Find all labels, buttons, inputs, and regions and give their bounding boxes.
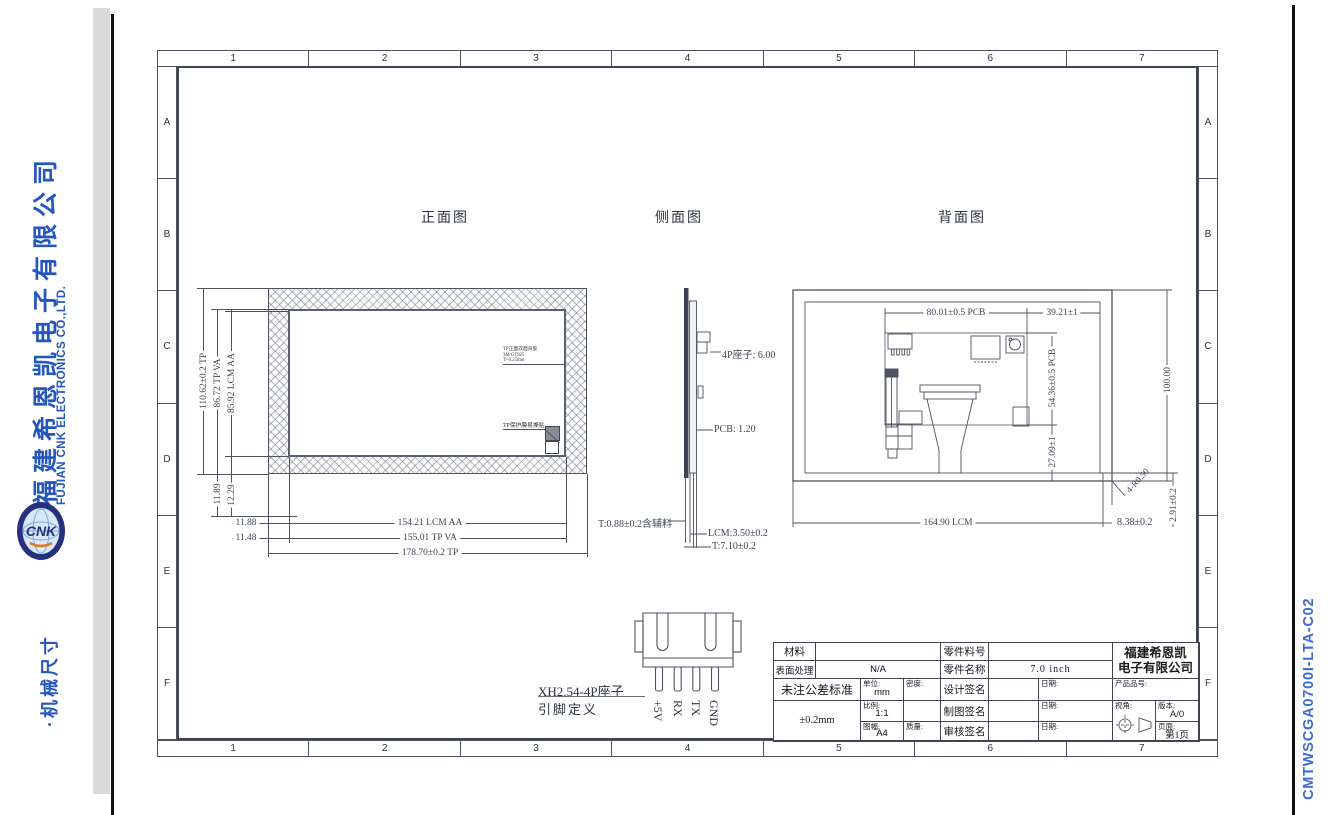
tolerance-label: 未注公差标准 [774, 679, 861, 701]
dim-label: 86.72 TP VA [213, 356, 223, 409]
dim-label: 80.01±0.5 PCB [924, 308, 989, 318]
col-label: 2 [309, 741, 460, 756]
extension-line [225, 311, 288, 312]
section-title-mechanical: ·机械尺寸 [36, 634, 62, 727]
company-line1: 福建希恩凯 [1124, 646, 1187, 661]
product-no-cell: 产品品号: [1113, 679, 1199, 701]
part-name-value: 7.0 inch [989, 661, 1113, 679]
side-view-title: 侧面图 [655, 207, 703, 227]
extension-line [289, 457, 290, 543]
page-cell: 页面: 第1页 [1156, 722, 1199, 741]
right-edge-line [1292, 5, 1295, 815]
extension-line [197, 288, 268, 289]
audit-sign-area[interactable] [989, 722, 1039, 741]
connector-drawing [630, 608, 750, 700]
column-ruler-bottom: 1 2 3 4 5 6 7 [157, 740, 1218, 757]
part-no-value [989, 643, 1113, 661]
back-view-title: 背面图 [938, 207, 986, 227]
dim-label: 178.70±0.2 TP [399, 548, 462, 558]
row-ruler-right: A B C D E F [1198, 66, 1218, 740]
film-note: TP保护膜易撕贴 [503, 420, 545, 429]
col-label: 4 [612, 741, 763, 756]
dim-label: 8.38±0.2 [1117, 517, 1153, 528]
dim-label: 39.21±1 [1043, 308, 1080, 318]
col-label: 6 [915, 51, 1066, 66]
col-label: 4 [612, 51, 763, 66]
title-block: 材料 零件料号 福建希恩凯 电子有限公司 表面处理 N/A 零件名称 7.0 i… [773, 642, 1200, 742]
row-label: E [158, 516, 176, 628]
dim-label: 85.92 LCM AA [227, 351, 237, 415]
surface-value: N/A [816, 661, 941, 679]
dim-label: 11.89 [213, 481, 223, 506]
col-label: 1 [158, 51, 309, 66]
datasheet-page: 福建希恩凯电子有限公司 FUJIAN CNK ELECTRONICS CO.,L… [0, 0, 1334, 815]
date-cell: 日期: [1039, 701, 1113, 722]
front-view-title: 正面图 [421, 207, 469, 227]
dim-label: 110.62±0.2 TP [199, 351, 209, 411]
col-label: 3 [461, 51, 612, 66]
format-cell: 图幅:A4 [861, 722, 904, 741]
tolerance-value: ±0.2mm [774, 701, 861, 741]
connector-title-underline [538, 696, 645, 697]
row-label: F [158, 628, 176, 739]
row-label: A [1199, 67, 1217, 179]
row-label: A [158, 67, 176, 179]
svg-text:CNK: CNK [26, 523, 57, 539]
volume-cell [904, 701, 941, 722]
part-name-label: 零件名称 [941, 661, 989, 679]
tape-note: TP正面双面背胶 3M GT825 T=0.25mm [503, 347, 537, 364]
company-name-en: FUJIAN CNK ELECTRONICS CO.,LTD. [56, 286, 68, 505]
col-label: 5 [764, 741, 915, 756]
design-sign-label: 设计签名 [941, 679, 989, 701]
col-label: 1 [158, 741, 309, 756]
col-label: 6 [915, 741, 1066, 756]
pin-label: TX [688, 700, 703, 716]
design-sign-area[interactable] [989, 679, 1039, 701]
col-label: 2 [309, 51, 460, 66]
row-label: C [1199, 291, 1217, 403]
mass-cell: 质量: [904, 722, 941, 741]
company-cell: 福建希恩凯 电子有限公司 [1113, 643, 1199, 679]
protect-film-sticker-light [545, 441, 559, 454]
version-cell: 版本: A/0 [1156, 701, 1199, 722]
col-label: 7 [1067, 51, 1217, 66]
row-label: B [158, 179, 176, 291]
extension-line [566, 457, 567, 543]
dim-label: 11.88 [232, 518, 259, 528]
draft-sign-area[interactable] [989, 701, 1039, 722]
dim-label: 164.90 LCM [920, 518, 975, 528]
scrollbar-track[interactable] [93, 8, 110, 794]
date-cell: 日期: [1039, 679, 1113, 701]
doc-code: CMTWSCGA0700I-LTA-C02 [1301, 598, 1317, 800]
dim-label: 155.01 TP VA [400, 533, 460, 543]
extension-line [587, 474, 588, 557]
connector-subtitle: 引脚定义 [538, 699, 598, 718]
dim-label: 100.00 [1163, 365, 1173, 395]
dim-label: 54.36±0.5 PCB [1048, 347, 1058, 410]
tape-note-leader [503, 364, 566, 365]
dim-label: 154.21 LCM AA [395, 518, 466, 528]
scale-cell: 比例:1:1 [861, 701, 904, 722]
dim-label: 12.29 [227, 482, 237, 507]
extension-line [268, 474, 269, 557]
row-label: E [1199, 516, 1217, 628]
material-label: 材料 [774, 643, 816, 661]
extension-line [197, 474, 268, 475]
unit-cell: 单位:mm [861, 679, 904, 701]
row-label: B [1199, 179, 1217, 291]
column-ruler-top: 1 2 3 4 5 6 7 [157, 50, 1218, 67]
projection-cell: 视角: [1113, 701, 1156, 741]
col-label: 7 [1067, 741, 1217, 756]
col-label: 3 [461, 741, 612, 756]
projection-symbol-icon [1115, 713, 1153, 737]
dim-label: 27.09±1 [1048, 434, 1058, 469]
cnk-logo: CNK [16, 501, 66, 561]
dim-label: LCM:3.50±0.2 [708, 528, 768, 539]
pin-label: +5V [650, 700, 665, 721]
dim-label: 11.48 [232, 533, 259, 543]
back-view-drawing [780, 285, 1200, 535]
audit-sign-label: 审核签名 [941, 722, 989, 741]
dim-label: 4P座子: 6.00 [722, 346, 775, 361]
company-line2: 电子有限公司 [1118, 661, 1193, 676]
col-label: 5 [764, 51, 915, 66]
dim-label: T:7.10±0.2 [712, 541, 756, 552]
front-view-active-area [288, 309, 566, 457]
surface-label: 表面处理 [774, 661, 816, 679]
draft-sign-label: 制图签名 [941, 701, 989, 722]
density-cell: 密度: [904, 679, 941, 701]
pin-label: RX [670, 700, 685, 717]
row-ruler-left: A B C D E F [157, 66, 177, 740]
row-label: D [1199, 404, 1217, 516]
left-edge-line [111, 14, 114, 815]
material-value [816, 643, 941, 661]
dimension-line [232, 538, 566, 539]
extension-line [211, 516, 297, 517]
part-no-label: 零件料号 [941, 643, 989, 661]
row-label: F [1199, 628, 1217, 739]
extension-line [211, 309, 288, 310]
film-note-leader [503, 429, 545, 430]
dim-label: T:0.88±0.2含辅料 [590, 515, 672, 530]
row-label: C [158, 291, 176, 403]
dim-label: PCB: 1.20 [714, 424, 756, 435]
row-label: D [158, 404, 176, 516]
extension-line [225, 456, 288, 457]
date-cell: 日期: [1039, 722, 1113, 741]
pin-label: GND [706, 700, 721, 726]
dim-label: 2.91±0.2 [1169, 486, 1179, 524]
protect-film-sticker-dark [545, 426, 560, 441]
